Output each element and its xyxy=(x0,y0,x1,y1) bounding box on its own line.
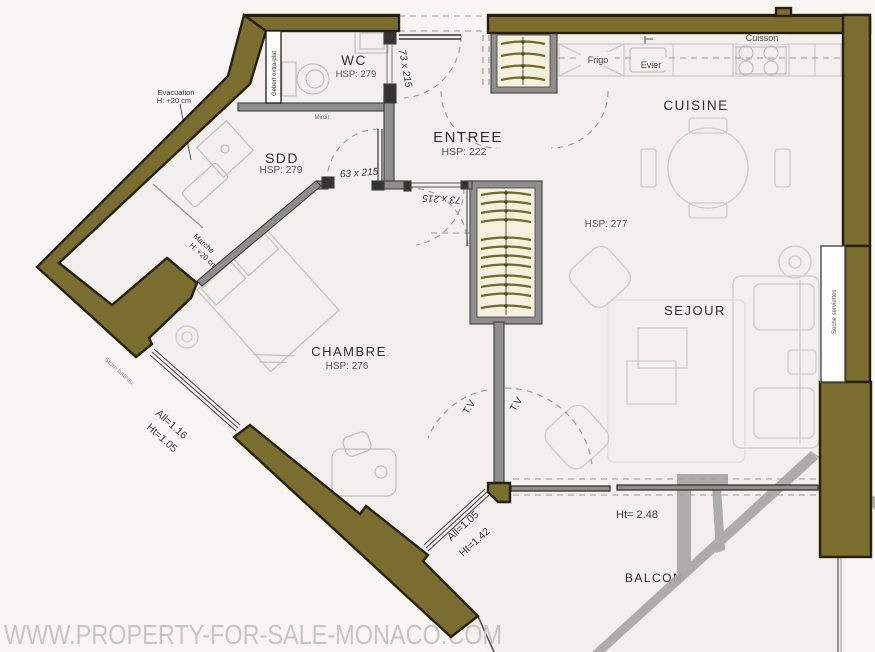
svg-text:Miroir: Miroir xyxy=(315,115,330,121)
svg-text:HSP: 279: HSP: 279 xyxy=(260,165,303,176)
svg-text:WC: WC xyxy=(341,53,367,68)
svg-text:Cuisson: Cuisson xyxy=(746,33,779,43)
svg-text:73 x 215: 73 x 215 xyxy=(422,192,461,205)
svg-text:HSP: 279: HSP: 279 xyxy=(336,69,377,80)
svg-text:CHAMBRE: CHAMBRE xyxy=(311,344,387,359)
svg-text:SEJOUR: SEJOUR xyxy=(664,303,726,318)
svg-text:HSP: 277: HSP: 277 xyxy=(585,219,628,230)
svg-text:WWW.PROPERTY-FOR-SALE-MONACO.C: WWW.PROPERTY-FOR-SALE-MONACO.COM xyxy=(4,619,502,650)
svg-text:Evier: Evier xyxy=(641,60,662,70)
svg-text:Gebert extra-plat: Gebert extra-plat xyxy=(272,51,278,96)
svg-text:Seche serviettes: Seche serviettes xyxy=(832,290,838,334)
svg-text:H: +20 cm: H: +20 cm xyxy=(157,96,191,105)
svg-text:SDD: SDD xyxy=(265,150,299,166)
svg-text:CUISINE: CUISINE xyxy=(663,98,728,113)
svg-text:Ht= 2.48: Ht= 2.48 xyxy=(616,509,658,521)
svg-text:HSP: 222: HSP: 222 xyxy=(442,146,487,158)
svg-text:ENTREE: ENTREE xyxy=(433,129,503,146)
svg-text:Frigo: Frigo xyxy=(588,55,609,65)
svg-text:HSP: 276: HSP: 276 xyxy=(326,361,369,372)
